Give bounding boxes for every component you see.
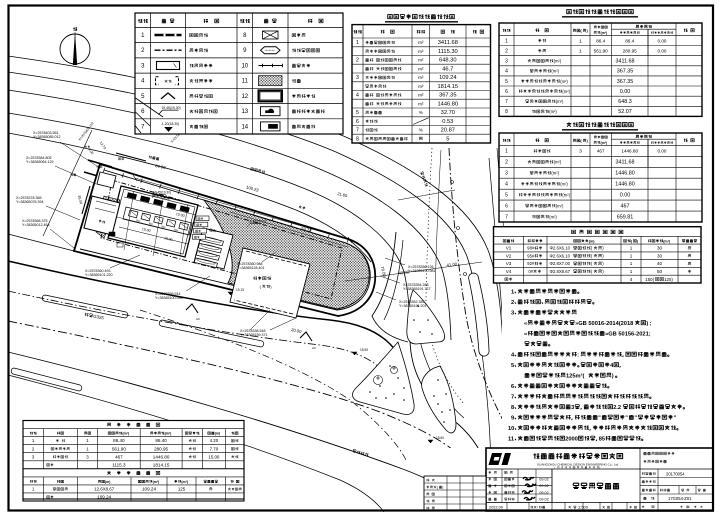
svg-text:150(: 150( (645, 277, 654, 282)
svg-text:3411.68: 3411.68 (438, 40, 458, 46)
svg-text:Φ2.8X8.67: Φ2.8X8.67 (550, 269, 571, 274)
svg-text:(m²): (m²) (549, 109, 557, 114)
svg-text:7.70: 7.70 (210, 446, 219, 451)
svg-text:(m): (m) (215, 432, 220, 436)
svg-text:86.40: 86.40 (113, 438, 125, 443)
svg-text:18.95: 18.95 (360, 348, 368, 352)
svg-text:09.02: 09.02 (539, 498, 549, 502)
svg-text:1:500: 1:500 (578, 505, 589, 510)
svg-text:1446.80: 1446.80 (438, 101, 459, 107)
svg-text:7: 7 (356, 128, 359, 134)
svg-text:(m²): (m²) (549, 214, 557, 219)
svg-text:20170054: 20170054 (666, 472, 685, 477)
svg-text:»GB 50156-2021: »GB 50156-2021 (605, 332, 649, 338)
svg-text:": " (598, 416, 601, 422)
svg-text:18.60: 18.60 (436, 436, 444, 440)
svg-text::: : (577, 353, 579, 359)
svg-text:86.4: 86.4 (596, 38, 605, 43)
svg-text:467: 467 (621, 203, 630, 209)
svg-text:11: 11 (242, 79, 249, 85)
svg-text:(m³): (m³) (663, 239, 671, 243)
svg-text:V4: V4 (506, 269, 512, 274)
svg-text:86.40: 86.40 (155, 438, 167, 443)
svg-text:6: 6 (505, 203, 508, 209)
svg-text:1446.80: 1446.80 (615, 182, 635, 188)
svg-text:(m²): (m²) (556, 203, 564, 208)
svg-text:m²: m² (418, 75, 424, 80)
svg-text:2: 2 (505, 48, 508, 54)
svg-text:8: 8 (505, 109, 508, 115)
svg-text:1446.80: 1446.80 (621, 149, 638, 154)
svg-text:0.00: 0.00 (620, 192, 631, 198)
svg-text:10: 10 (508, 426, 514, 432)
svg-text:(m²): (m²) (560, 79, 568, 84)
svg-text:3: 3 (571, 405, 574, 411)
svg-text:(m²): (m²) (551, 69, 559, 74)
svg-text:(m²): (m²) (601, 31, 607, 35)
svg-text:V3: V3 (506, 261, 512, 266)
svg-text:5: 5 (505, 192, 508, 198)
svg-text:40: 40 (657, 261, 663, 266)
svg-text:2: 2 (505, 160, 508, 166)
svg-text:1115.3: 1115.3 (112, 462, 126, 467)
svg-text:15.00: 15.00 (208, 454, 220, 459)
svg-text:-1.20(18.30): -1.20(18.30) (161, 122, 179, 126)
svg-text:V2: V2 (506, 254, 512, 259)
svg-text:2022.09: 2022.09 (489, 506, 503, 510)
svg-text:09.02: 09.02 (539, 491, 549, 495)
svg-text:17G054-Z01: 17G054-Z01 (668, 496, 692, 501)
svg-text:50: 50 (657, 269, 663, 274)
svg-text:0.00: 0.00 (658, 38, 667, 43)
svg-text:): ) (646, 321, 648, 327)
svg-text:«: « (524, 332, 527, 338)
svg-text:659.81: 659.81 (617, 214, 634, 220)
svg-text:19.30(19.15): 19.30(19.15) (248, 220, 266, 224)
svg-text:(m²): (m²) (165, 432, 172, 436)
svg-text:648.30: 648.30 (439, 58, 456, 64)
svg-text:20.87: 20.87 (441, 128, 455, 134)
svg-text:m²: m² (418, 93, 424, 98)
svg-text:86.4: 86.4 (625, 38, 634, 43)
svg-text:8: 8 (511, 405, 514, 411)
svg-text:m²: m² (418, 58, 424, 63)
svg-text:13: 13 (241, 109, 248, 115)
svg-text:«: « (524, 321, 527, 327)
svg-text:1446.80: 1446.80 (615, 171, 635, 177)
svg-text:85: 85 (599, 437, 605, 443)
svg-text:125: 125 (178, 487, 186, 492)
svg-text:3: 3 (505, 171, 508, 177)
svg-text:125m³(: 125m³( (566, 373, 584, 380)
svg-text:19.45(19.30): 19.45(19.30) (161, 106, 180, 110)
svg-text:648.3: 648.3 (618, 99, 632, 105)
svg-text:%: % (419, 110, 423, 115)
svg-text:m²: m² (418, 101, 424, 106)
svg-text:6: 6 (511, 384, 514, 390)
svg-text:8: 8 (356, 136, 359, 142)
svg-text:2: 2 (356, 58, 359, 64)
svg-text:3: 3 (505, 59, 508, 65)
svg-text:1: 1 (505, 38, 508, 44)
svg-text:3: 3 (579, 149, 582, 155)
svg-text:1: 1 (630, 246, 633, 251)
svg-text:;: ; (649, 332, 651, 338)
svg-text:4: 4 (630, 277, 633, 282)
svg-text:m²: m² (418, 84, 424, 89)
svg-text:1: 1 (579, 48, 582, 54)
svg-text:2000: 2000 (565, 437, 578, 443)
svg-text:Y=38365100.998: Y=38365100.998 (155, 296, 182, 300)
svg-text:Y=38365101.220: Y=38365101.220 (85, 273, 112, 277)
svg-text:": " (674, 416, 677, 422)
svg-text:1814.15: 1814.15 (438, 84, 459, 90)
svg-text:7: 7 (505, 99, 508, 105)
svg-text:09.02: 09.02 (539, 484, 549, 488)
svg-text:Φ2.6X6.10: Φ2.6X6.10 (550, 246, 571, 251)
svg-text:1814.15: 1814.15 (153, 462, 170, 467)
svg-text:19.45(19.30): 19.45(19.30) (153, 191, 171, 195)
svg-text:5: 5 (505, 79, 508, 85)
svg-text:V1: V1 (506, 246, 512, 251)
svg-text:09.02: 09.02 (539, 478, 549, 482)
svg-text:1: 1 (630, 254, 633, 259)
svg-text:(m²): (m²) (560, 182, 568, 187)
svg-text:Φ2.6X6.10: Φ2.6X6.10 (550, 254, 571, 259)
svg-text:12: 12 (241, 94, 248, 100)
svg-text:(m²): (m²) (554, 160, 562, 165)
svg-text:1: 1 (511, 290, 514, 296)
svg-text:30: 30 (657, 254, 663, 259)
svg-text:(m²): (m²) (562, 89, 570, 94)
svg-text:(m): (m) (589, 239, 596, 243)
svg-text:Y=38365191.201: Y=38365191.201 (399, 304, 426, 308)
svg-text:/: / (537, 506, 538, 510)
svg-text:(m³): (m³) (181, 480, 188, 484)
svg-text:11: 11 (508, 437, 514, 443)
svg-text:5: 5 (446, 136, 449, 142)
svg-text:367.35: 367.35 (439, 93, 456, 99)
svg-text:Y=38365128.401: Y=38365128.401 (237, 266, 264, 270)
svg-text:GUANGZHOU CHEMICAL DESIGN ENGI: GUANGZHOU CHEMICAL DESIGN ENGINEERING Co… (537, 463, 619, 467)
svg-text:2.2: 2.2 (613, 405, 621, 411)
svg-text:): ) (612, 374, 614, 380)
svg-text:": " (625, 416, 628, 422)
svg-text:0.00: 0.00 (658, 48, 667, 53)
svg-text:;: ; (650, 321, 652, 327)
svg-text:10: 10 (241, 64, 248, 70)
svg-text:": " (634, 416, 637, 422)
svg-text:1446.80: 1446.80 (153, 454, 170, 459)
svg-text:95#: 95# (527, 254, 535, 259)
svg-text:109.24: 109.24 (97, 495, 111, 500)
svg-text:m²: m² (418, 66, 424, 71)
svg-text:467: 467 (597, 149, 605, 154)
svg-text:6: 6 (356, 119, 359, 125)
svg-text:(m²): (m²) (562, 192, 570, 197)
svg-text:9: 9 (511, 416, 514, 422)
svg-text:367.35: 367.35 (617, 69, 634, 75)
svg-text:32.70: 32.70 (441, 110, 455, 116)
svg-text:30: 30 (657, 246, 663, 251)
svg-text:4: 4 (356, 93, 359, 99)
svg-text:4: 4 (505, 69, 508, 75)
svg-text:3: 3 (356, 75, 359, 81)
svg-text:7: 7 (511, 395, 514, 401)
svg-text:5: 5 (356, 110, 359, 116)
svg-text:(m²): (m²) (556, 99, 564, 104)
svg-text:92#: 92# (527, 261, 535, 266)
svg-text:2: 2 (511, 300, 514, 306)
svg-text:1: 1 (630, 269, 633, 274)
svg-text:Φ2.8X7.00: Φ2.8X7.00 (550, 261, 571, 266)
svg-text:m²: m² (418, 49, 424, 54)
svg-text:46.7: 46.7 (442, 66, 453, 72)
svg-text:12.6X8.67: 12.6X8.67 (94, 487, 115, 492)
svg-text:0.53: 0.53 (442, 119, 453, 125)
svg-text:A0: A0 (312, 346, 316, 350)
svg-text:109.24: 109.24 (142, 487, 156, 492)
svg-text:Y=38365190.981: Y=38365190.981 (408, 269, 435, 273)
svg-text:(m²): (m²) (123, 432, 130, 436)
svg-text:A0: A0 (196, 317, 200, 321)
svg-text:1115.30: 1115.30 (438, 49, 458, 55)
svg-text:98#: 98# (527, 246, 535, 251)
svg-text:1: 1 (579, 38, 582, 44)
svg-text:280.95: 280.95 (154, 446, 168, 451)
svg-text:109.24: 109.24 (439, 75, 456, 81)
svg-text:1: 1 (356, 40, 359, 46)
svg-text:4.20: 4.20 (210, 438, 219, 443)
svg-text:(m²): (m²) (601, 141, 607, 145)
svg-text:367.35: 367.35 (617, 79, 634, 85)
svg-text:3411.68: 3411.68 (615, 160, 634, 166)
svg-text:1: 1 (505, 149, 508, 155)
svg-text:Y=38365159.371: Y=38365159.371 (240, 333, 267, 337)
svg-text:m²: m² (418, 40, 424, 45)
svg-text:): ) (442, 486, 443, 490)
svg-text:(m): (m) (105, 480, 110, 484)
svg-text:0#: 0# (529, 269, 534, 274)
svg-text:0.00: 0.00 (620, 89, 631, 95)
svg-text:Y=38365012.464: Y=38365012.464 (22, 223, 49, 227)
svg-text:14: 14 (241, 124, 248, 130)
svg-text:7: 7 (505, 214, 508, 220)
svg-text:19.15: 19.15 (236, 288, 244, 292)
svg-text:(m²): (m²) (153, 480, 160, 484)
svg-text:Y=38365085.012: Y=38365085.012 (33, 135, 60, 139)
svg-text:Y=38365064.129: Y=38365064.129 (26, 160, 53, 164)
svg-text:467: 467 (115, 454, 123, 459)
svg-text:125): 125) (664, 277, 673, 282)
svg-text:Y=38365076.394: Y=38365076.394 (16, 200, 43, 204)
svg-text:%: % (419, 128, 423, 133)
svg-text:5: 5 (511, 363, 514, 369)
svg-text:1: 1 (630, 261, 633, 266)
svg-text:(m²): (m²) (551, 171, 559, 176)
svg-text:(m²): (m²) (554, 59, 562, 64)
svg-text:561.90: 561.90 (112, 446, 126, 451)
svg-text:3: 3 (511, 311, 514, 317)
svg-text:280.95: 280.95 (623, 48, 637, 53)
svg-text:3411.68: 3411.68 (615, 59, 634, 65)
svg-text:4: 4 (505, 182, 508, 188)
svg-text:»GB 50016-2014(2018: »GB 50016-2014(2018 (575, 321, 633, 327)
svg-text:52.07: 52.07 (618, 109, 632, 115)
svg-text:0.00: 0.00 (658, 149, 667, 154)
svg-text:6: 6 (505, 89, 508, 95)
svg-text:561.90: 561.90 (594, 48, 608, 53)
svg-text:Y=38365191.727: Y=38365191.727 (403, 287, 430, 291)
